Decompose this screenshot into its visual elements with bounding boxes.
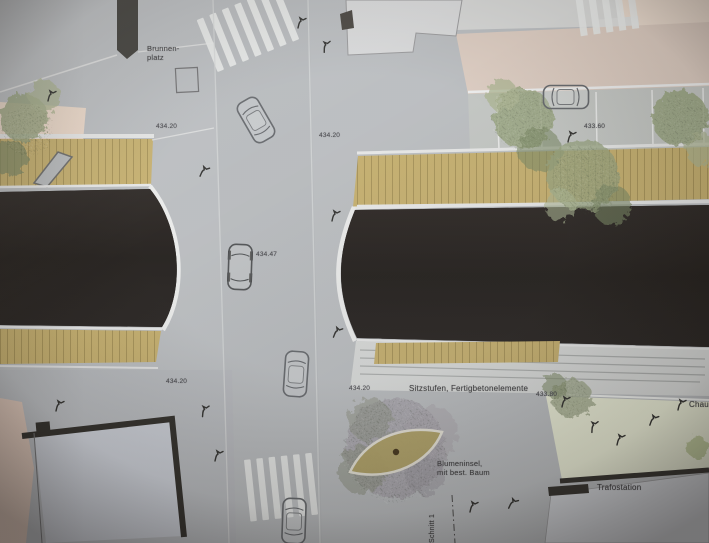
site-plan-photo: Brunnen- platz 434.20 434.20 433.60 434.… <box>0 0 709 543</box>
elevation-sidewalk-bottom-left: 434.20 <box>166 377 187 386</box>
label-sitzstufen: Sitzstufen, Fertigbetonelemente <box>409 384 528 393</box>
elevation-street-top-right: 434.20 <box>319 131 340 140</box>
dark-surface-texture <box>0 189 177 327</box>
timber-deck-left-bottom <box>0 329 161 364</box>
label-brunnenplatz-line1: Brunnen- <box>147 44 179 53</box>
elevation-seating-steps: 433.80 <box>536 390 557 399</box>
elevation-street-bottom-mid: 434.20 <box>349 384 370 393</box>
label-brunnenplatz-line2: platz <box>147 53 179 62</box>
dark-surface-texture <box>341 205 709 347</box>
building-bottom-left <box>34 420 183 543</box>
car-outline <box>227 244 254 290</box>
tree-trunk <box>393 449 399 455</box>
label-chaussee: Chau <box>689 400 709 409</box>
car-parked-outline <box>544 86 589 109</box>
elevation-plaza-top-left: 434.20 <box>156 122 177 131</box>
elevation-street-center: 434.47 <box>256 250 277 259</box>
shrub <box>686 436 708 458</box>
label-blumeninsel-line2: mit best. Baum <box>437 468 490 477</box>
label-schnitt: Schnitt 1 <box>428 514 437 543</box>
elevation-parking: 433.60 <box>584 122 605 131</box>
car-outline <box>282 498 307 543</box>
label-brunnenplatz: Brunnen- platz <box>147 44 179 62</box>
label-blumeninsel: Blumeninsel, mit best. Baum <box>437 459 490 477</box>
label-trafostation: Trafostation <box>597 483 641 492</box>
building-wall-step <box>36 421 51 432</box>
car-outline <box>283 351 309 397</box>
label-blumeninsel-line1: Blumeninsel, <box>437 459 490 468</box>
timber-step-right <box>374 341 560 364</box>
site-plan-drawing <box>0 0 709 543</box>
building-edge-bar <box>117 0 138 59</box>
